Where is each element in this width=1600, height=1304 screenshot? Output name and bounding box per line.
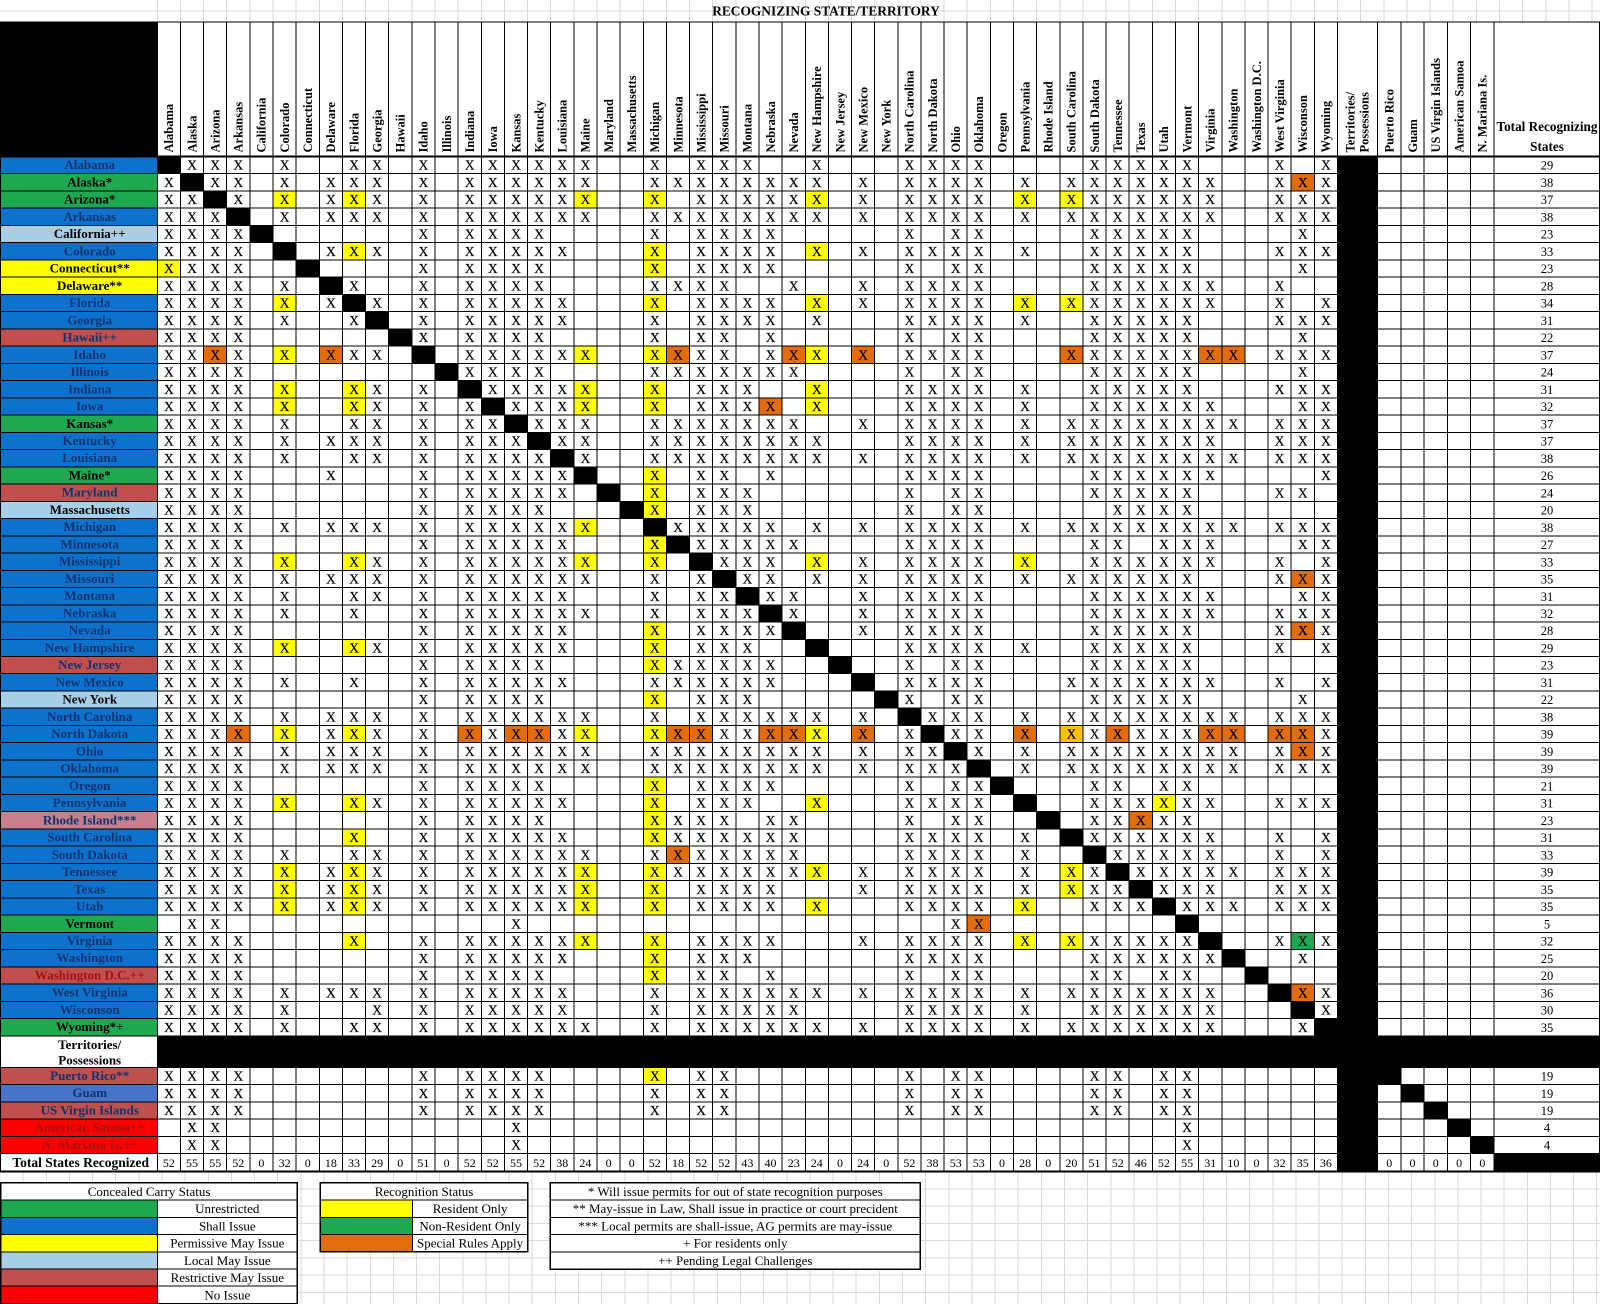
svg-text:X: X [974,727,984,742]
svg-text:X: X [1113,985,1123,1000]
svg-text:X: X [372,796,382,811]
svg-text:X: X [1298,209,1308,224]
svg-text:X: X [1113,709,1123,724]
svg-text:X: X [372,399,382,414]
svg-text:X: X [1113,589,1123,604]
svg-text:X: X [1113,330,1123,345]
svg-text:X: X [419,158,429,173]
svg-text:X: X [766,1020,776,1035]
svg-text:0: 0 [1254,1156,1260,1170]
svg-text:X: X [534,227,544,242]
svg-text:X: X [465,761,475,776]
svg-text:X: X [696,1020,706,1035]
svg-text:X: X [766,227,776,242]
svg-text:X: X [581,399,591,414]
svg-text:X: X [696,934,706,949]
svg-text:X: X [743,778,753,793]
svg-text:X: X [696,1003,706,1018]
svg-text:X: X [1182,209,1192,224]
svg-text:X: X [372,847,382,862]
svg-text:X: X [511,278,521,293]
svg-text:Kentucky: Kentucky [532,100,546,153]
svg-text:X: X [719,761,729,776]
svg-text:X: X [766,882,776,897]
svg-text:X: X [465,830,475,845]
svg-text:0: 0 [305,1156,311,1170]
svg-text:X: X [1067,296,1077,311]
svg-text:X: X [858,589,868,604]
svg-text:X: X [488,623,498,638]
svg-text:X: X [812,1020,822,1035]
svg-text:X: X [465,399,475,414]
svg-text:X: X [905,1086,915,1101]
svg-text:X: X [858,416,868,431]
svg-text:X: X [164,296,174,311]
svg-text:X: X [1229,451,1239,466]
svg-text:X: X [974,589,984,604]
svg-text:X: X [1298,606,1308,621]
svg-text:X: X [1113,658,1123,673]
svg-text:X: X [1113,399,1123,414]
svg-text:52: 52 [718,1156,730,1170]
svg-text:X: X [557,882,567,897]
svg-text:X: X [719,278,729,293]
svg-text:X: X [650,209,660,224]
svg-text:X: X [581,709,591,724]
svg-text:X: X [1205,451,1215,466]
svg-text:X: X [210,865,220,880]
svg-text:21: 21 [1541,779,1554,793]
svg-text:X: X [465,727,475,742]
svg-text:X: X [812,209,822,224]
svg-text:X: X [650,985,660,1000]
svg-text:X: X [1090,641,1100,656]
svg-text:X: X [812,313,822,328]
svg-text:X: X [696,1069,706,1084]
svg-text:X: X [557,347,567,362]
svg-text:X: X [1136,1020,1146,1035]
svg-text:X: X [1205,675,1215,690]
svg-text:X: X [951,365,961,380]
svg-text:X: X [1113,365,1123,380]
svg-text:X: X [743,503,753,518]
svg-text:X: X [210,434,220,449]
svg-text:X: X [1136,330,1146,345]
svg-text:X: X [1321,209,1331,224]
svg-text:X: X [372,296,382,311]
svg-text:X: X [164,951,174,966]
svg-text:X: X [928,278,938,293]
svg-text:X: X [1321,244,1331,259]
svg-text:X: X [696,882,706,897]
svg-text:Arkansas: Arkansas [63,209,116,224]
svg-text:X: X [1020,727,1030,742]
svg-text:X: X [858,278,868,293]
svg-text:X: X [951,830,961,845]
svg-text:New Jersey: New Jersey [833,91,847,152]
svg-text:X: X [974,261,984,276]
svg-text:X: X [1136,451,1146,466]
svg-text:36: 36 [1320,1156,1332,1170]
svg-text:X: X [1113,554,1123,569]
svg-text:X: X [1067,434,1077,449]
svg-text:X: X [1020,934,1030,949]
svg-text:X: X [419,830,429,845]
svg-text:X: X [951,296,961,311]
svg-text:X: X [488,434,498,449]
svg-text:X: X [1159,313,1169,328]
svg-text:X: X [905,692,915,707]
svg-text:X: X [1020,830,1030,845]
svg-text:X: X [1136,847,1146,862]
svg-text:X: X [1113,209,1123,224]
svg-text:X: X [1159,589,1169,604]
svg-text:+ For residents only: + For residents only [683,1236,788,1251]
svg-text:X: X [372,416,382,431]
svg-text:X: X [1136,796,1146,811]
svg-text:X: X [349,399,359,414]
svg-text:X: X [928,865,938,880]
svg-text:X: X [743,692,753,707]
svg-text:X: X [419,865,429,880]
svg-text:X: X [465,503,475,518]
svg-text:X: X [650,1069,660,1084]
svg-text:X: X [581,520,591,535]
svg-text:X: X [349,899,359,914]
svg-text:X: X [1020,865,1030,880]
svg-text:X: X [1182,330,1192,345]
svg-text:0: 0 [1045,1156,1051,1170]
svg-text:X: X [233,572,243,587]
svg-text:39: 39 [1541,745,1554,759]
svg-text:X: X [1090,261,1100,276]
svg-text:X: X [511,520,521,535]
svg-text:X: X [974,227,984,242]
svg-text:X: X [1275,727,1285,742]
svg-text:** May-issue in Law, Shall iss: ** May-issue in Law, Shall issue in prac… [573,1201,899,1216]
svg-text:X: X [164,778,174,793]
svg-text:X: X [164,1086,174,1101]
svg-text:X: X [210,1003,220,1018]
svg-text:0: 0 [1456,1156,1462,1170]
svg-text:X: X [951,796,961,811]
svg-text:X: X [187,468,197,483]
svg-text:X: X [812,865,822,880]
svg-text:X: X [1298,882,1308,897]
svg-text:X: X [488,192,498,207]
svg-text:X: X [905,382,915,397]
svg-text:X: X [465,1069,475,1084]
svg-text:X: X [280,796,290,811]
svg-text:X: X [905,882,915,897]
svg-text:X: X [905,623,915,638]
svg-text:X: X [1298,899,1308,914]
svg-text:X: X [488,796,498,811]
svg-text:X: X [164,365,174,380]
svg-text:X: X [1229,709,1239,724]
svg-text:X: X [928,347,938,362]
svg-text:X: X [534,503,544,518]
svg-text:X: X [511,296,521,311]
svg-text:X: X [650,347,660,362]
svg-text:X: X [928,192,938,207]
svg-text:X: X [1067,865,1077,880]
svg-text:X: X [650,882,660,897]
svg-text:X: X [1113,934,1123,949]
svg-text:X: X [465,347,475,362]
svg-text:X: X [326,209,336,224]
svg-text:X: X [1020,209,1030,224]
svg-text:Washington: Washington [56,950,123,965]
svg-text:X: X [1113,1020,1123,1035]
svg-text:X: X [465,434,475,449]
svg-text:X: X [1159,347,1169,362]
svg-text:Kansas*: Kansas* [66,416,113,431]
svg-text:X: X [1136,313,1146,328]
svg-text:X: X [280,278,290,293]
svg-text:X: X [1136,503,1146,518]
svg-text:X: X [581,899,591,914]
svg-text:X: X [210,572,220,587]
svg-text:X: X [1275,313,1285,328]
svg-text:X: X [372,572,382,587]
svg-text:X: X [951,934,961,949]
svg-text:23: 23 [1541,814,1554,828]
svg-text:55: 55 [510,1156,522,1170]
svg-text:X: X [650,796,660,811]
svg-text:X: X [974,744,984,759]
svg-text:X: X [905,830,915,845]
svg-text:X: X [534,554,544,569]
svg-text:X: X [696,382,706,397]
svg-text:X: X [951,382,961,397]
svg-text:X: X [858,744,868,759]
svg-text:X: X [928,709,938,724]
svg-text:X: X [164,261,174,276]
svg-text:39: 39 [1541,762,1554,776]
svg-text:X: X [1113,692,1123,707]
svg-text:X: X [187,882,197,897]
svg-text:28: 28 [1541,624,1554,638]
svg-text:X: X [743,209,753,224]
svg-text:X: X [488,382,498,397]
svg-text:X: X [766,296,776,311]
svg-text:X: X [465,899,475,914]
svg-text:X: X [650,865,660,880]
svg-text:X: X [696,778,706,793]
svg-text:X: X [326,244,336,259]
svg-text:X: X [1159,278,1169,293]
svg-text:X: X [1090,899,1100,914]
svg-text:X: X [1113,313,1123,328]
svg-text:Nevada: Nevada [69,623,111,638]
svg-text:X: X [326,985,336,1000]
svg-text:X: X [233,1103,243,1118]
svg-text:Connecticut: Connecticut [301,87,315,152]
svg-text:X: X [280,347,290,362]
svg-text:X: X [743,485,753,500]
svg-text:X: X [187,244,197,259]
svg-text:X: X [187,899,197,914]
svg-text:X: X [1113,468,1123,483]
svg-text:X: X [928,985,938,1000]
svg-text:X: X [557,416,567,431]
svg-text:X: X [1067,675,1077,690]
svg-text:X: X [1090,244,1100,259]
svg-text:X: X [743,899,753,914]
svg-text:X: X [1090,675,1100,690]
svg-text:X: X [1275,416,1285,431]
svg-text:X: X [557,623,567,638]
svg-text:X: X [1136,934,1146,949]
svg-text:52: 52 [1158,1156,1170,1170]
svg-text:X: X [1159,727,1169,742]
svg-text:X: X [511,606,521,621]
svg-text:X: X [1159,744,1169,759]
svg-text:X: X [1136,296,1146,311]
svg-text:X: X [1113,1086,1123,1101]
svg-text:X: X [905,209,915,224]
svg-text:52: 52 [695,1156,707,1170]
svg-text:X: X [187,727,197,742]
svg-text:X: X [187,382,197,397]
svg-text:X: X [1113,261,1123,276]
svg-text:X: X [1275,830,1285,845]
svg-text:No Issue: No Issue [204,1287,250,1302]
svg-text:X: X [951,278,961,293]
svg-text:++ Pending Legal Challenges: ++ Pending Legal Challenges [658,1253,812,1268]
svg-text:X: X [372,451,382,466]
svg-text:X: X [326,727,336,742]
svg-text:X: X [673,520,683,535]
svg-text:X: X [1298,399,1308,414]
svg-text:39: 39 [1541,728,1554,742]
svg-text:X: X [743,451,753,466]
svg-text:X: X [905,503,915,518]
svg-text:X: X [1182,1069,1192,1084]
svg-text:X: X [1182,1120,1192,1135]
svg-text:X: X [419,606,429,621]
svg-text:X: X [789,416,799,431]
svg-text:X: X [1159,1086,1169,1101]
svg-text:X: X [1113,813,1123,828]
svg-text:X: X [696,1103,706,1118]
svg-text:X: X [1159,572,1169,587]
svg-text:10: 10 [1227,1156,1239,1170]
svg-text:33: 33 [348,1156,360,1170]
svg-text:X: X [349,847,359,862]
svg-text:X: X [812,158,822,173]
svg-text:X: X [719,382,729,397]
svg-text:Guam: Guam [72,1085,107,1100]
svg-text:X: X [696,365,706,380]
svg-text:X: X [1067,192,1077,207]
svg-text:X: X [1090,709,1100,724]
svg-text:Idaho: Idaho [73,347,106,362]
svg-text:X: X [511,882,521,897]
svg-text:X: X [164,709,174,724]
svg-text:X: X [187,192,197,207]
svg-text:X: X [743,934,753,949]
svg-text:X: X [280,399,290,414]
svg-text:X: X [650,1086,660,1101]
svg-text:X: X [210,382,220,397]
svg-text:X: X [164,554,174,569]
svg-text:X: X [974,244,984,259]
svg-text:X: X [650,1103,660,1118]
svg-text:X: X [928,175,938,190]
svg-text:Texas: Texas [1134,122,1148,152]
svg-text:X: X [233,1020,243,1035]
svg-text:X: X [210,296,220,311]
svg-text:X: X [349,675,359,690]
svg-text:X: X [233,778,243,793]
svg-text:X: X [743,434,753,449]
svg-text:X: X [164,434,174,449]
svg-text:X: X [951,347,961,362]
svg-text:X: X [789,744,799,759]
svg-text:X: X [789,985,799,1000]
svg-text:X: X [488,727,498,742]
svg-text:X: X [233,692,243,707]
svg-text:X: X [1159,434,1169,449]
svg-text:X: X [1182,985,1192,1000]
svg-text:52: 52 [533,1156,545,1170]
svg-text:California: California [255,97,269,153]
svg-text:X: X [1067,520,1077,535]
svg-text:X: X [1321,175,1331,190]
svg-text:X: X [280,606,290,621]
svg-text:Washington: Washington [1227,89,1241,153]
svg-text:X: X [511,985,521,1000]
svg-text:X: X [1136,830,1146,845]
svg-text:X: X [1090,330,1100,345]
svg-text:X: X [465,485,475,500]
svg-text:X: X [280,451,290,466]
svg-text:X: X [164,623,174,638]
svg-text:Arizona: Arizona [209,109,223,153]
svg-text:X: X [1182,744,1192,759]
svg-text:X: X [766,572,776,587]
svg-text:X: X [1159,1003,1169,1018]
svg-text:X: X [1205,209,1215,224]
svg-text:X: X [951,985,961,1000]
svg-text:X: X [210,537,220,552]
svg-text:X: X [766,865,776,880]
svg-text:X: X [511,313,521,328]
svg-text:X: X [928,382,938,397]
svg-text:X: X [372,347,382,362]
svg-text:X: X [974,1003,984,1018]
svg-text:38: 38 [1541,210,1554,224]
svg-text:South Dakota: South Dakota [1088,78,1102,152]
svg-text:X: X [349,796,359,811]
svg-text:X: X [719,589,729,604]
svg-text:X: X [719,830,729,845]
svg-text:X: X [210,468,220,483]
svg-text:X: X [511,399,521,414]
svg-text:X: X [280,192,290,207]
svg-text:X: X [858,761,868,776]
svg-text:0: 0 [629,1156,635,1170]
svg-text:X: X [673,175,683,190]
svg-text:X: X [1321,554,1331,569]
svg-text:X: X [557,468,567,483]
svg-text:American Samoa++: American Samoa++ [34,1120,145,1135]
svg-text:X: X [1205,554,1215,569]
svg-text:X: X [1275,675,1285,690]
svg-text:X: X [1159,658,1169,673]
